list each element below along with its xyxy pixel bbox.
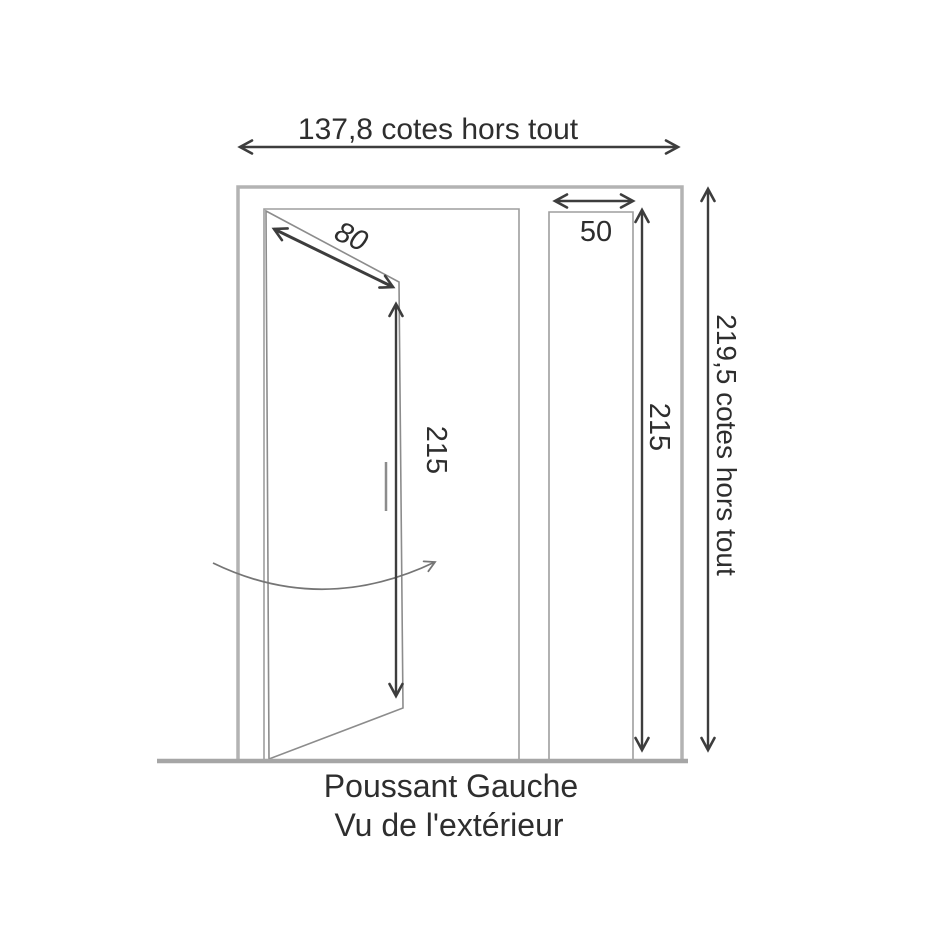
outer-frame [238, 187, 682, 761]
door-drawing-page: 137,8 cotes hors tout 80 215 50 215 219,… [0, 0, 940, 940]
diagram-canvas: 137,8 cotes hors tout 80 215 50 215 219,… [0, 0, 940, 940]
panel-height-label: 215 [643, 403, 675, 451]
overall-width-label: 137,8 cotes hors tout [298, 113, 579, 146]
leaf-height-label: 215 [420, 426, 452, 474]
door-leaf [266, 211, 403, 759]
caption-swing-direction: Poussant Gauche [324, 768, 578, 804]
side-panel-frame [549, 212, 633, 761]
door-opening-frame [264, 209, 519, 761]
panel-width-label: 50 [580, 216, 612, 248]
leaf-diagonal-label: 80 [330, 216, 373, 259]
overall-height-label: 219,5 cotes hors tout [711, 314, 742, 576]
caption-view-side: Vu de l'extérieur [334, 807, 563, 843]
